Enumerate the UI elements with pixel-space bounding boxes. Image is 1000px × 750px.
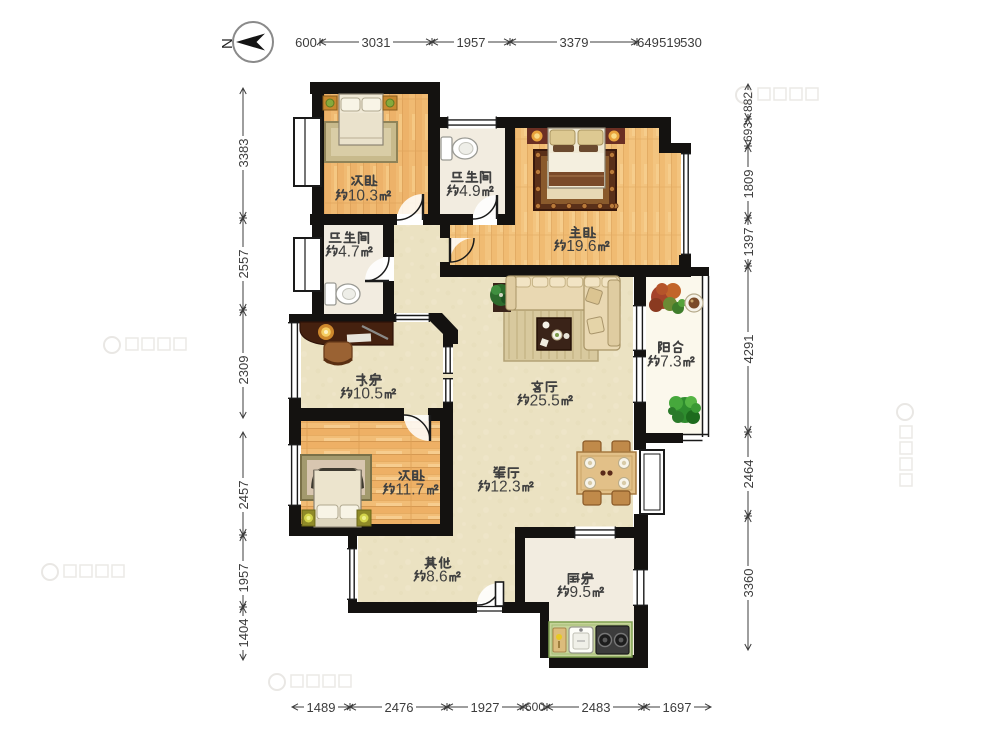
svg-text:3360: 3360 — [741, 569, 756, 598]
svg-text:11.7: 11.7 — [395, 482, 424, 499]
svg-text:2476: 2476 — [385, 700, 414, 715]
svg-text:1927: 1927 — [471, 700, 500, 715]
svg-text:2309: 2309 — [236, 356, 251, 385]
svg-text:1397: 1397 — [741, 228, 756, 257]
svg-text:2464: 2464 — [741, 460, 756, 489]
svg-text:1404: 1404 — [236, 619, 251, 648]
svg-text:N: N — [219, 38, 236, 49]
svg-text:4.7: 4.7 — [338, 244, 360, 261]
svg-text:9.5: 9.5 — [570, 584, 592, 601]
svg-text:19.6: 19.6 — [566, 238, 596, 255]
svg-text:600: 600 — [525, 700, 545, 714]
svg-text:3379: 3379 — [560, 35, 589, 50]
svg-text:8.6: 8.6 — [426, 569, 448, 586]
svg-text:4291: 4291 — [741, 335, 756, 364]
svg-text:1957: 1957 — [457, 35, 486, 50]
svg-text:2457: 2457 — [236, 481, 251, 510]
svg-text:2557: 2557 — [236, 250, 251, 279]
svg-text:693: 693 — [741, 122, 755, 142]
svg-text:10.3: 10.3 — [348, 188, 378, 205]
svg-text:12.3: 12.3 — [490, 479, 520, 496]
svg-text:1697: 1697 — [663, 700, 692, 715]
svg-text:649: 649 — [637, 35, 659, 50]
svg-text:3383: 3383 — [236, 139, 251, 168]
svg-text:4.9: 4.9 — [459, 183, 481, 200]
svg-text:2483: 2483 — [582, 700, 611, 715]
svg-text:530: 530 — [680, 35, 702, 50]
svg-text:519: 519 — [659, 35, 681, 50]
svg-text:1957: 1957 — [236, 564, 251, 593]
svg-text:1809: 1809 — [741, 170, 756, 199]
svg-text:1489: 1489 — [307, 700, 336, 715]
svg-text:25.5: 25.5 — [530, 392, 560, 409]
svg-text:10.5: 10.5 — [353, 386, 383, 403]
svg-text:882: 882 — [741, 92, 755, 112]
svg-text:3031: 3031 — [362, 35, 391, 50]
svg-text:600: 600 — [295, 35, 317, 50]
svg-text:7.3: 7.3 — [660, 354, 682, 371]
